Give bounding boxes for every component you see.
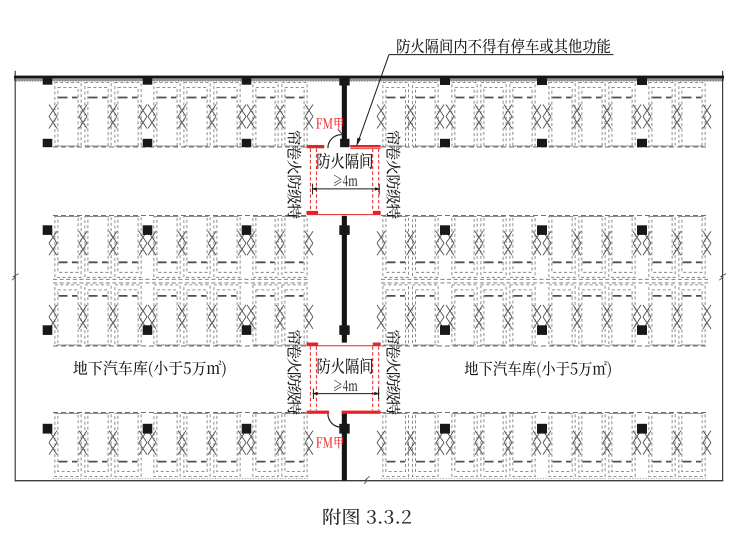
svg-text:帘: 帘 bbox=[382, 330, 404, 345]
svg-text:特: 特 bbox=[283, 400, 305, 415]
svg-text:级: 级 bbox=[382, 386, 404, 401]
svg-text:附图 3.3.2: 附图 3.3.2 bbox=[322, 504, 412, 530]
svg-text:帘: 帘 bbox=[283, 330, 305, 345]
svg-text:防: 防 bbox=[382, 372, 404, 388]
svg-text:防火隔间: 防火隔间 bbox=[317, 352, 374, 377]
svg-text:FM甲: FM甲 bbox=[316, 431, 345, 451]
svg-text:防: 防 bbox=[283, 372, 305, 388]
svg-text:≥4m: ≥4m bbox=[333, 170, 358, 191]
svg-text:特: 特 bbox=[382, 400, 404, 415]
svg-text:级: 级 bbox=[382, 189, 404, 204]
svg-text:防: 防 bbox=[283, 174, 305, 190]
svg-text:火: 火 bbox=[283, 358, 305, 373]
svg-text:火: 火 bbox=[283, 159, 305, 174]
svg-text:防火隔间: 防火隔间 bbox=[316, 148, 373, 173]
svg-text:帘: 帘 bbox=[283, 130, 305, 145]
svg-text:防火隔间内不得有停车或其他功能: 防火隔间内不得有停车或其他功能 bbox=[396, 34, 611, 57]
svg-text:卷: 卷 bbox=[382, 344, 404, 360]
svg-text:卷: 卷 bbox=[283, 145, 305, 161]
svg-text:防: 防 bbox=[382, 174, 404, 190]
svg-text:特: 特 bbox=[283, 204, 305, 219]
svg-text:火: 火 bbox=[382, 159, 404, 174]
svg-text:级: 级 bbox=[283, 386, 305, 401]
svg-text:帘: 帘 bbox=[382, 130, 404, 145]
svg-text:级: 级 bbox=[283, 189, 305, 204]
svg-text:≥4m: ≥4m bbox=[333, 375, 358, 396]
svg-text:火: 火 bbox=[382, 358, 404, 373]
svg-text:FM甲: FM甲 bbox=[316, 112, 345, 132]
svg-text:卷: 卷 bbox=[382, 145, 404, 161]
svg-text:地下汽车库(小于5万㎡): 地下汽车库(小于5万㎡) bbox=[73, 356, 227, 379]
svg-text:特: 特 bbox=[382, 204, 404, 219]
svg-text:卷: 卷 bbox=[283, 344, 305, 360]
svg-text:地下汽车库(小于5万㎡): 地下汽车库(小于5万㎡) bbox=[464, 356, 612, 379]
